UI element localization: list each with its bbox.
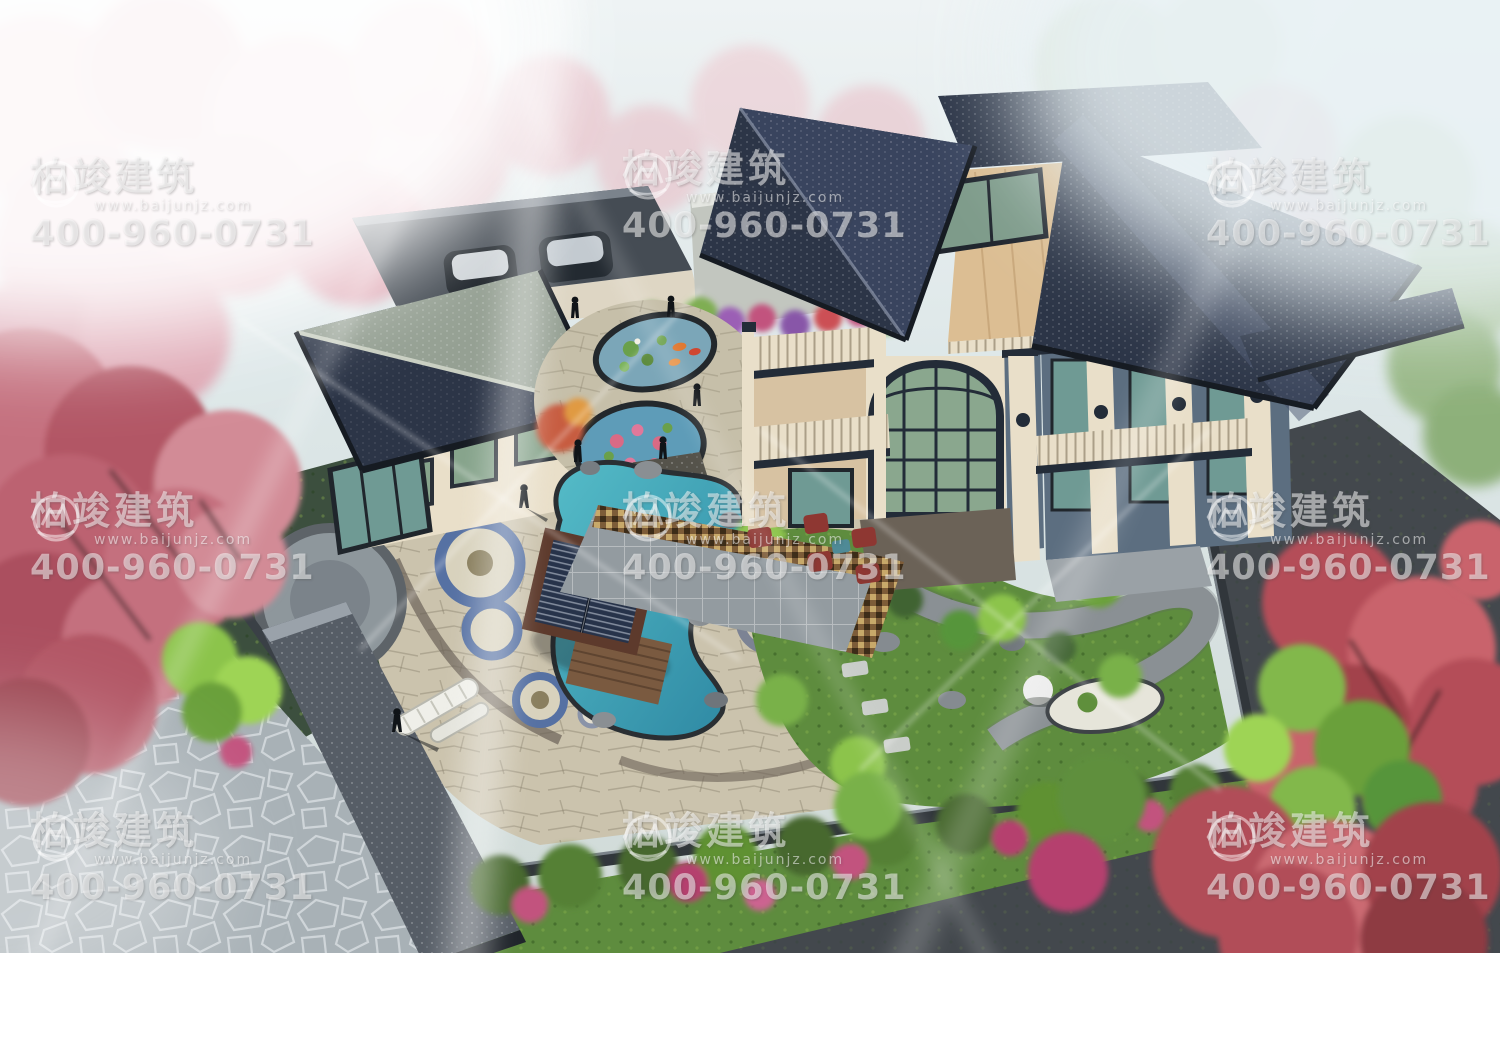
rendering-canvas <box>0 0 1500 953</box>
villa-garden-aerial-rendering: 柏竣建筑 www.baijunjz.com 400-960-0731 柏竣建筑 … <box>0 0 1500 953</box>
bottom-white-margin <box>0 953 1500 1060</box>
arched-window <box>872 364 1000 516</box>
